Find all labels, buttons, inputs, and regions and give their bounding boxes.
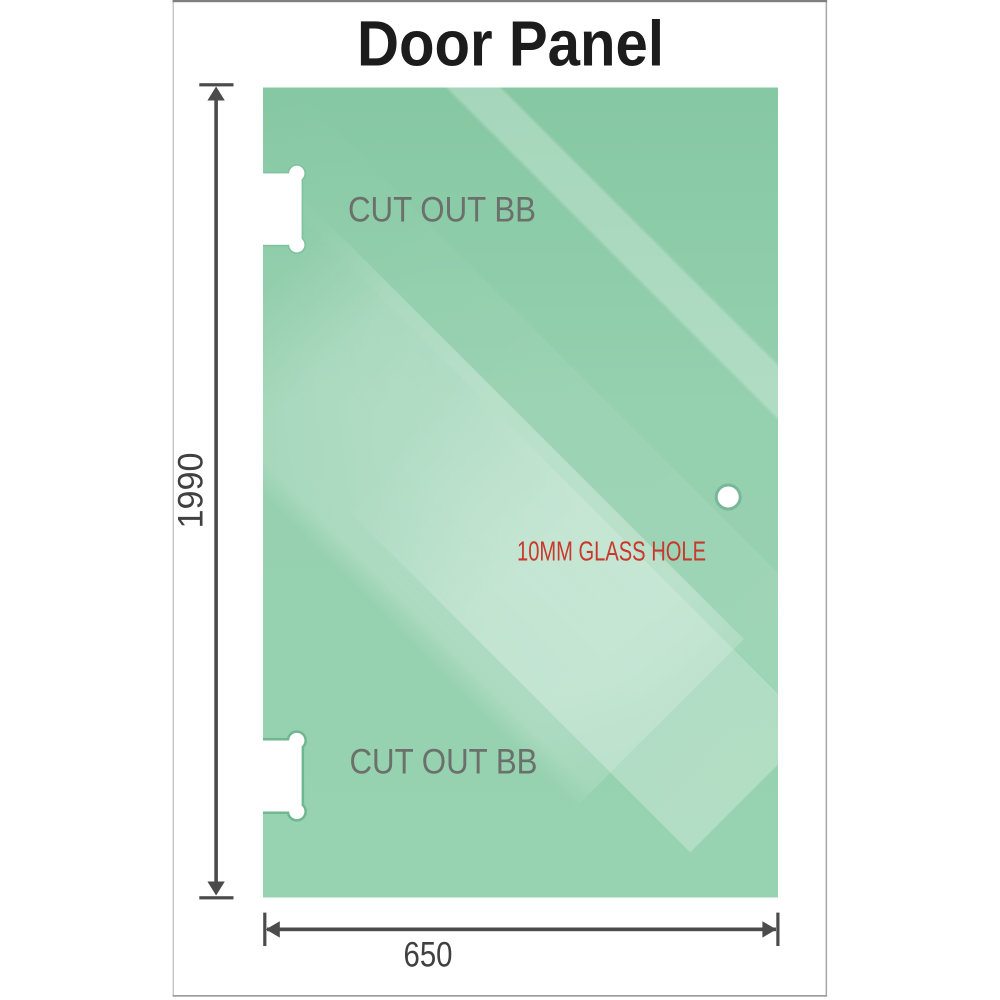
svg-text:10MM GLASS HOLE: 10MM GLASS HOLE xyxy=(517,536,706,567)
svg-text:650: 650 xyxy=(404,935,453,975)
svg-text:1990: 1990 xyxy=(170,453,210,529)
svg-text:CUT OUT BB: CUT OUT BB xyxy=(350,742,538,782)
svg-text:CUT OUT BB: CUT OUT BB xyxy=(348,190,536,230)
svg-text:Door Panel: Door Panel xyxy=(357,8,664,80)
